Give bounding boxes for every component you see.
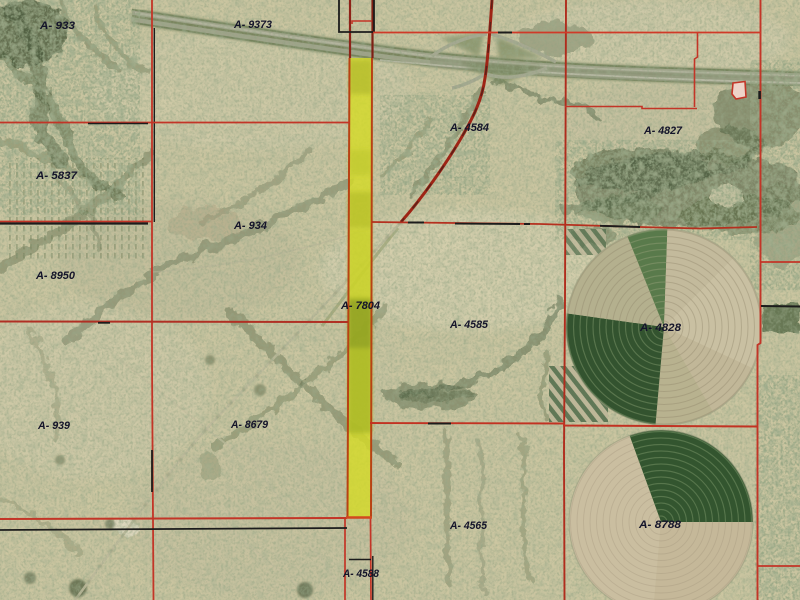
svg-text:A- 5837: A- 5837 [35, 170, 78, 182]
svg-text:A- 4585: A- 4585 [449, 319, 489, 331]
svg-text:A- 9373: A- 9373 [233, 19, 272, 31]
svg-text:A- 939: A- 939 [37, 420, 70, 432]
svg-text:A- 8950: A- 8950 [35, 270, 75, 282]
svg-text:A- 4827: A- 4827 [643, 125, 683, 137]
svg-text:A- 7804: A- 7804 [340, 300, 380, 312]
svg-text:A- 8679: A- 8679 [230, 419, 268, 431]
svg-text:A- 4565: A- 4565 [449, 520, 488, 532]
svg-text:A- 933: A- 933 [39, 20, 75, 32]
svg-text:A- 4584: A- 4584 [449, 122, 489, 134]
svg-text:A- 4588: A- 4588 [342, 568, 379, 580]
svg-text:A- 8788: A- 8788 [638, 519, 681, 531]
svg-text:A- 4828: A- 4828 [639, 322, 681, 334]
svg-text:A- 934: A- 934 [233, 220, 267, 232]
